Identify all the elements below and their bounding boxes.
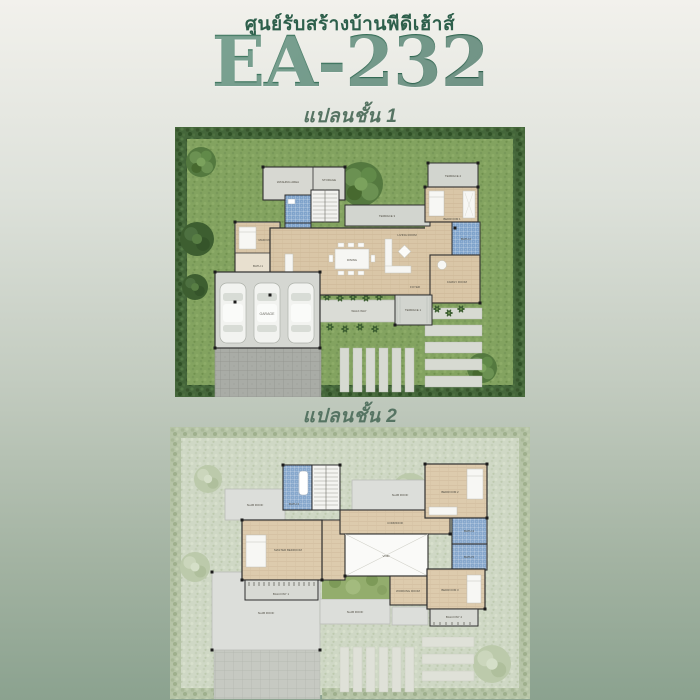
balcony2: BALCONY 2: [430, 609, 478, 626]
void-opening: VOID: [345, 534, 428, 576]
bed-icon: [467, 575, 481, 603]
bath3-label: BATH 3: [289, 502, 299, 506]
bath4-label: BATH 4: [464, 529, 474, 533]
stairs: [312, 465, 340, 510]
floor1-plan: WALK WAY WASHING AREA STORAGE: [175, 127, 525, 397]
bath2-label: BATH 2: [461, 237, 471, 241]
void-label: VOID: [382, 554, 389, 558]
balcony1-label: BALCONY 1: [273, 592, 290, 596]
car-icon: [288, 283, 314, 343]
bed-icon: [246, 535, 266, 567]
bed-icon: [467, 469, 483, 499]
poster-page: ศูนย์รับสร้างบ้านพีดีเฮ้าส์ EA-232 แปลนช…: [0, 0, 700, 700]
bed-icon: [429, 191, 444, 216]
bath5-label: BATH 5: [464, 555, 474, 559]
slabroof-label: SLAB ROOF: [247, 503, 264, 507]
terrace2-label: TERRACE 2: [445, 174, 462, 178]
bathtub-icon: [299, 471, 308, 495]
wardrobe-icon: [429, 507, 457, 515]
model-code-title: EA-232: [0, 24, 700, 100]
driveway-faded: [214, 649, 320, 699]
dining-label: DINING: [347, 258, 358, 262]
slabroof-label: SLAB ROOF: [347, 610, 364, 614]
walkway-label: WALK WAY: [351, 309, 366, 313]
living-label: LIVING ROOM: [397, 233, 417, 237]
balcony1: BALCONY 1: [245, 580, 318, 600]
driveway: [215, 348, 321, 397]
corridor-label: CORRIDOR: [387, 521, 403, 525]
storage-label: STORAGE: [322, 178, 336, 182]
toilet-icon: [288, 199, 295, 204]
master-label: MASTER BEDROOM: [274, 548, 302, 552]
bedroom2-label: BEDROOM 2: [441, 490, 459, 494]
family-room: [430, 255, 480, 303]
floor2-plan: SLAB ROOF SLAB ROOF SLAB ROOF SLAB ROOF …: [170, 427, 530, 699]
table-icon: [438, 261, 447, 270]
bed-icon: [239, 227, 256, 249]
foyer-label: FOYER: [410, 285, 420, 289]
slabroof-label: SLAB ROOF: [258, 611, 275, 615]
stepping-stones-horizontal: [422, 637, 474, 681]
slabroof-label: SLAB ROOF: [392, 493, 409, 497]
working-label: WORKING ROOM: [396, 589, 421, 593]
family-label: FAMILY ROOM: [447, 280, 467, 284]
garage-label: GARAGE: [260, 312, 276, 316]
bedroom3-label: BEDROOM 3: [441, 588, 459, 592]
car-icon: [220, 283, 246, 343]
terrace3-label: TERRACE 3: [379, 214, 396, 218]
terrace1-label: TERRACE 1: [405, 308, 422, 312]
bedroom1-label: BEDROOM 1: [443, 217, 461, 221]
bath1-label: BATH 1: [253, 264, 263, 268]
stairs: [311, 190, 339, 222]
washing-label: WASHING AREA: [277, 180, 299, 184]
balcony2-label: BALCONY 2: [446, 615, 463, 619]
